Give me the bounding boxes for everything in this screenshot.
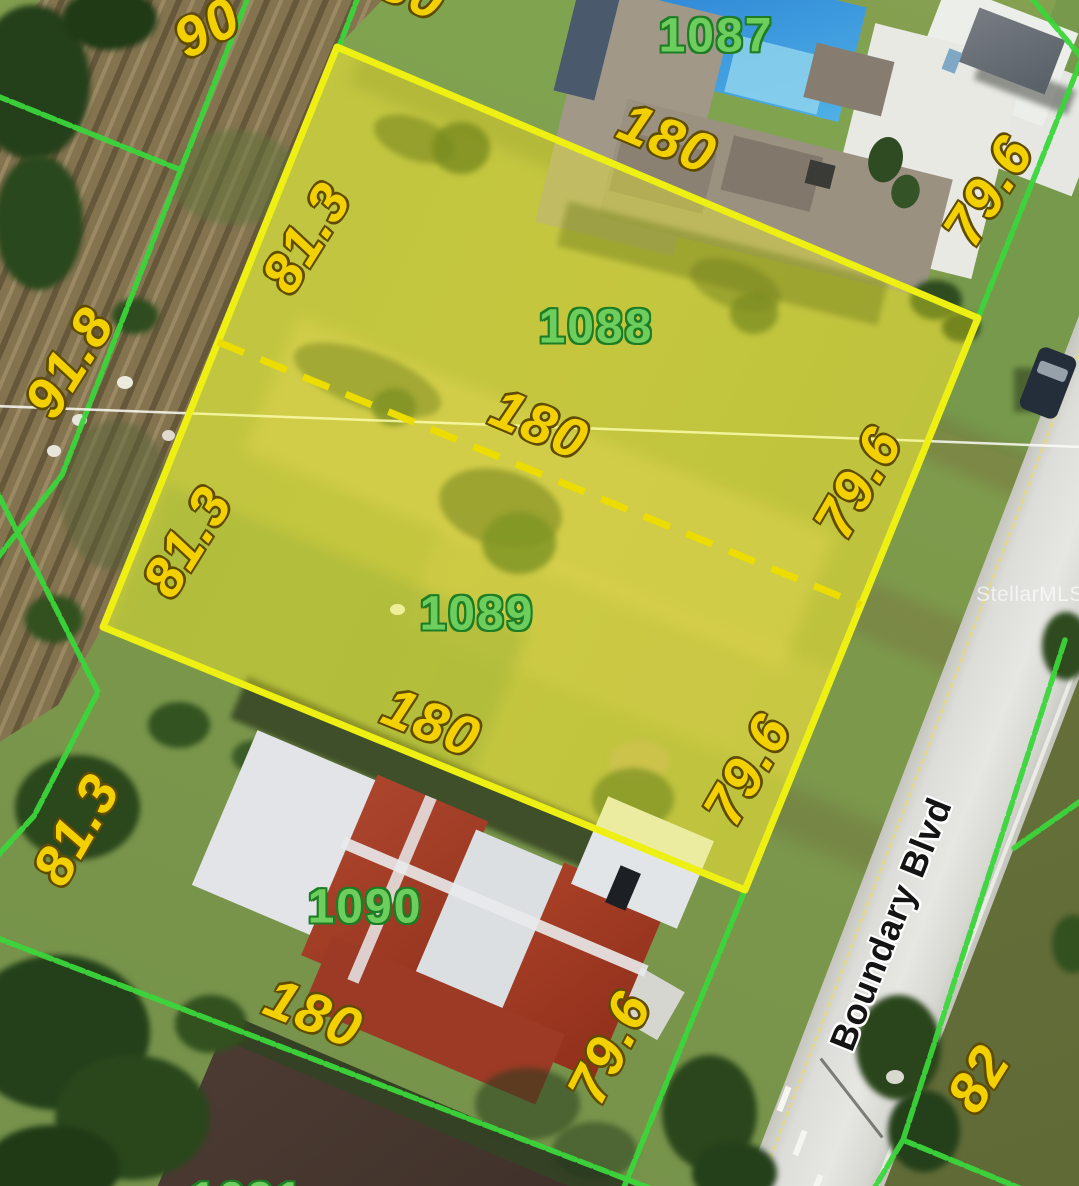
parcel-line xyxy=(0,94,181,170)
lot-number-1089: 1089 xyxy=(420,587,535,642)
lot-number-partial-bottom: 1091 xyxy=(190,1173,305,1186)
parcel-line xyxy=(1028,0,1079,58)
parcel-line xyxy=(903,1140,1079,1186)
parcel-line xyxy=(0,936,660,1186)
lot-number-1090: 1090 xyxy=(308,880,423,935)
lot-number-1087: 1087 xyxy=(659,9,774,64)
aerial-parcel-map: 90 180 180 79.6 81.3 91.8 180 79.6 81.3 … xyxy=(0,0,1079,1186)
lot-number-1088: 1088 xyxy=(539,300,654,355)
mls-watermark: StellarMLS xyxy=(976,583,1079,607)
parcel-line xyxy=(1014,798,1079,848)
parcel-line xyxy=(337,0,360,52)
